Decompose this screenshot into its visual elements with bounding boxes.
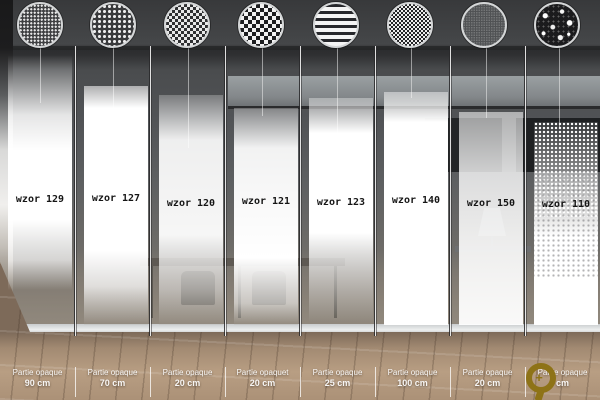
magnifier-plus-glyph: + xyxy=(533,372,545,384)
caption-divider xyxy=(375,367,376,397)
micro-grain-pattern-icon[interactable] xyxy=(461,2,507,48)
caption-divider xyxy=(450,367,451,397)
zoom-magnifier-watermark-icon[interactable]: + xyxy=(524,363,560,399)
pattern-label: wzor 121 xyxy=(234,196,298,207)
swatch-string xyxy=(262,48,263,116)
horizontal-stripes-pattern-icon[interactable] xyxy=(313,2,359,48)
opaque-caption-title: Partie opaque xyxy=(375,368,450,378)
pattern-label: wzor 120 xyxy=(159,198,223,209)
opaque-caption-title: Partie opaque xyxy=(150,368,225,378)
caption-divider xyxy=(75,367,76,397)
pattern-label: wzor 110 xyxy=(534,199,598,210)
caption-divider xyxy=(225,367,226,397)
film-panel-127 xyxy=(84,86,148,325)
small-checker-pattern-icon[interactable] xyxy=(164,2,210,48)
fine-checker-pattern-icon[interactable] xyxy=(387,2,433,48)
film-panel-121 xyxy=(234,108,298,325)
glass-joint xyxy=(299,46,302,336)
glass-joint xyxy=(524,46,527,336)
catalog-collage: wzor 129 wzor 127 wzor 120 wzor 121 wzor… xyxy=(0,0,600,400)
pattern-label: wzor 140 xyxy=(384,195,448,206)
film-panel-150 xyxy=(459,112,523,325)
opaque-caption-value: 25 cm xyxy=(300,378,375,389)
opaque-caption-value: 20 cm xyxy=(225,378,300,389)
opaque-caption: Partie opaque 20 cm xyxy=(150,368,225,389)
opaque-caption-title: Partie opaque xyxy=(0,368,75,378)
pattern-label: wzor 127 xyxy=(84,193,148,204)
opaque-caption: Partie opaquet 20 cm xyxy=(225,368,300,389)
fine-dot-grid-pattern-icon[interactable] xyxy=(17,2,63,48)
pattern-label: wzor 123 xyxy=(309,197,373,208)
grain-texture xyxy=(534,167,598,277)
swatch-string xyxy=(411,48,412,98)
opaque-caption: Partie opaque 20 cm xyxy=(450,368,525,389)
opaque-caption-title: Partie opaque xyxy=(75,368,150,378)
opaque-caption-title: Partie opaque xyxy=(300,368,375,378)
opaque-caption-value: 70 cm xyxy=(75,378,150,389)
opaque-caption-value: 20 cm xyxy=(450,378,525,389)
film-panel-129 xyxy=(8,55,72,290)
pattern-label: wzor 150 xyxy=(459,198,523,209)
glass-joint xyxy=(224,46,227,336)
swatch-string xyxy=(559,48,560,128)
film-panel-140 xyxy=(384,92,448,325)
opaque-caption: Partie opaque 100 cm xyxy=(375,368,450,389)
film-panel-123 xyxy=(309,98,373,322)
glass-joint xyxy=(149,46,152,336)
opaque-caption: Partie opaque 90 cm xyxy=(0,368,75,389)
large-checker-pattern-icon[interactable] xyxy=(238,2,284,48)
film-panel-110 xyxy=(534,122,598,325)
opaque-caption-value: 100 cm xyxy=(375,378,450,389)
random-speckle-pattern-icon[interactable] xyxy=(534,2,580,48)
opaque-caption-value: 90 cm xyxy=(0,378,75,389)
pattern-label: wzor 129 xyxy=(8,194,72,205)
opaque-caption: Partie opaque 70 cm xyxy=(75,368,150,389)
caption-divider xyxy=(300,367,301,397)
swatch-string xyxy=(486,48,487,118)
opaque-caption-title: Partie opaquet xyxy=(225,368,300,378)
opaque-caption: Partie opaque 25 cm xyxy=(300,368,375,389)
opaque-caption-value: 20 cm xyxy=(150,378,225,389)
glass-joint xyxy=(449,46,452,336)
opaque-caption-title: Partie opaque xyxy=(450,368,525,378)
film-panel-120 xyxy=(159,95,223,325)
caption-divider xyxy=(150,367,151,397)
glass-joint xyxy=(374,46,377,336)
dot-grid-pattern-icon[interactable] xyxy=(90,2,136,48)
glass-joint xyxy=(74,46,77,336)
